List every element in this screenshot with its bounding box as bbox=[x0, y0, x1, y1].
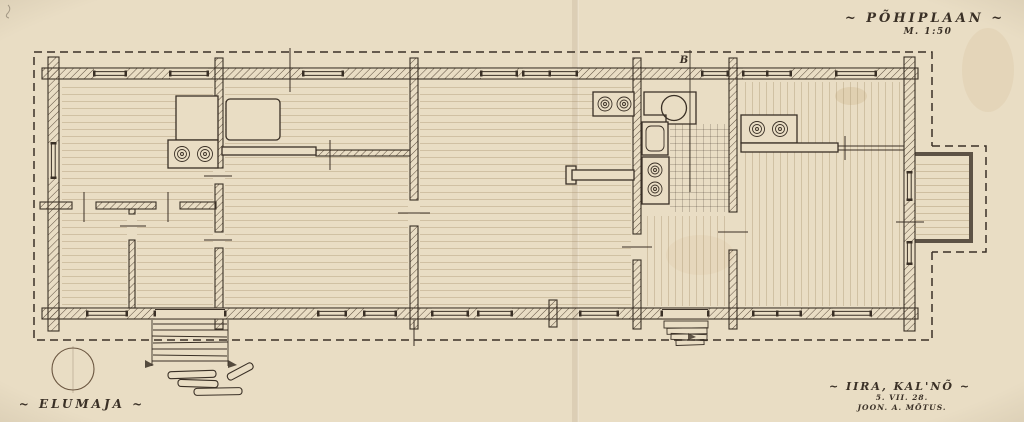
sink bbox=[642, 122, 668, 155]
window bbox=[701, 69, 729, 79]
window bbox=[742, 69, 792, 79]
window bbox=[579, 309, 619, 319]
date-label: 5. VII. 28. bbox=[876, 393, 929, 402]
log-end bbox=[549, 300, 557, 327]
window bbox=[363, 309, 397, 319]
window bbox=[49, 142, 59, 179]
window bbox=[905, 241, 915, 265]
window bbox=[522, 69, 578, 79]
kitchen-stove bbox=[593, 92, 634, 116]
window bbox=[431, 309, 469, 319]
drawing-scale: M. 1:50 bbox=[903, 27, 953, 37]
window bbox=[86, 309, 128, 319]
location-label: ~ IIRA, KAL'NÕ ~ bbox=[829, 379, 971, 393]
window bbox=[169, 69, 209, 79]
author-label: JOON. A. MÕTUS. bbox=[856, 403, 947, 412]
window bbox=[302, 69, 344, 79]
west-wall bbox=[48, 57, 59, 331]
tiled-floor bbox=[670, 124, 730, 212]
bake-oven bbox=[226, 99, 280, 140]
window bbox=[835, 69, 877, 79]
window bbox=[93, 69, 127, 79]
window bbox=[477, 309, 513, 319]
window bbox=[905, 171, 915, 201]
window bbox=[832, 309, 872, 319]
drawing-title: ~ PÕHIPLAAN ~ bbox=[845, 10, 1005, 26]
floor-plan-svg: ~ PÕHIPLAAN ~ M. 1:50 ~ ELUMAJA ~ ~ IIRA… bbox=[0, 0, 1024, 422]
window bbox=[317, 309, 347, 319]
rear-door bbox=[661, 309, 710, 319]
window bbox=[752, 309, 802, 319]
main-door bbox=[154, 309, 227, 319]
bench bbox=[222, 147, 316, 155]
masonry-stove-left bbox=[168, 96, 218, 168]
kitchen-range bbox=[642, 157, 669, 204]
drawing-sheet: ~ PÕHIPLAAN ~ M. 1:50 ~ ELUMAJA ~ ~ IIRA… bbox=[0, 0, 1024, 422]
window bbox=[480, 69, 518, 79]
section-mark-b: B bbox=[679, 55, 688, 66]
building-label: ~ ELUMAJA ~ bbox=[19, 397, 145, 411]
